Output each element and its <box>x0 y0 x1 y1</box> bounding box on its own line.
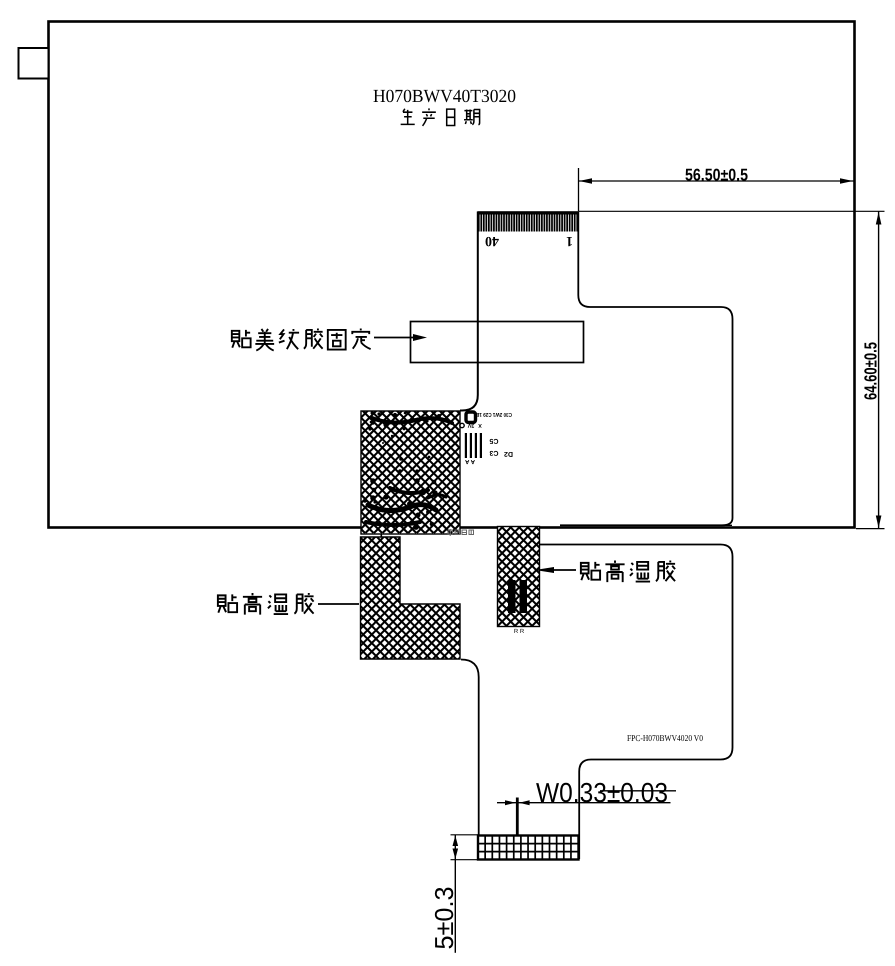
svg-text:X: X <box>478 422 482 428</box>
svg-text:C30 2W1 C29 1B: C30 2W1 C29 1B <box>476 411 512 417</box>
svg-text:H070BWV40T3020: H070BWV40T3020 <box>373 87 516 107</box>
svg-text:5±0.3: 5±0.3 <box>429 887 459 950</box>
svg-text:C3: C3 <box>489 449 498 456</box>
svg-text:3V: 3V <box>467 422 474 428</box>
svg-text:FPC-H070BWV4020 V0: FPC-H070BWV4020 V0 <box>627 733 703 743</box>
svg-text:A A: A A <box>464 458 475 465</box>
svg-text:W0.33±0.03: W0.33±0.03 <box>536 777 668 808</box>
svg-text:R R: R R <box>514 628 525 635</box>
svg-text:1: 1 <box>566 233 573 248</box>
svg-text:56.50±0.5: 56.50±0.5 <box>685 166 748 185</box>
svg-text:64.60±0.5: 64.60±0.5 <box>861 342 881 400</box>
svg-text:C5: C5 <box>489 437 498 444</box>
svg-text:D2: D2 <box>504 450 513 457</box>
svg-text:40: 40 <box>485 233 499 248</box>
